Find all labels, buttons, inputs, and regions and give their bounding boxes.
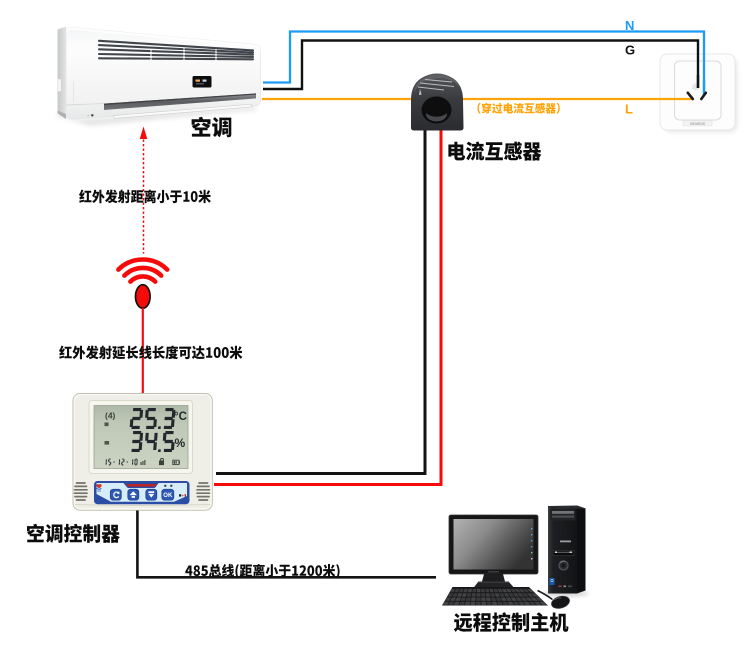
svg-text:N: N [625, 18, 634, 33]
svg-text:%: % [175, 436, 186, 450]
svg-text:°C: °C [174, 411, 187, 423]
svg-text:OK: OK [163, 493, 173, 499]
svg-text:(4): (4) [105, 411, 116, 421]
svg-text:G: G [625, 43, 635, 58]
svg-text:L: L [625, 102, 633, 117]
svg-text:SIEMENS: SIEMENS [690, 122, 706, 126]
